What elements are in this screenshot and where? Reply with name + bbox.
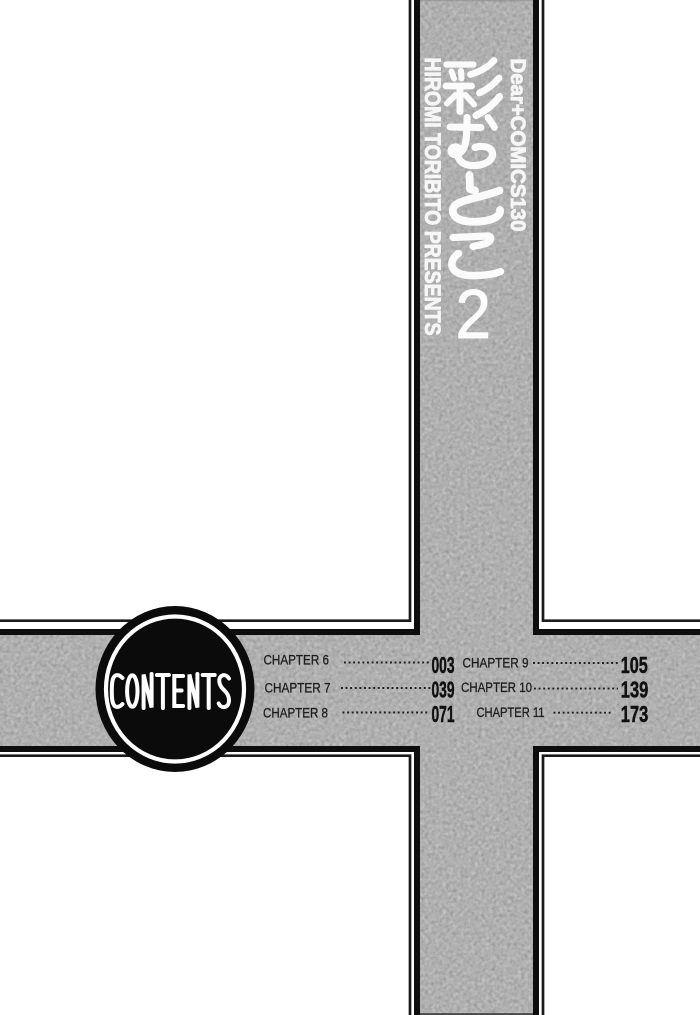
svg-text:105: 105 — [621, 652, 648, 678]
svg-text:CHAPTER 6: CHAPTER 6 — [264, 653, 330, 668]
svg-text:CHAPTER 10: CHAPTER 10 — [461, 680, 532, 695]
svg-text:071: 071 — [432, 701, 455, 727]
svg-text:CHAPTER 7: CHAPTER 7 — [265, 681, 331, 696]
svg-text:CHAPTER 8: CHAPTER 8 — [263, 706, 328, 721]
svg-text:003: 003 — [432, 652, 455, 678]
svg-text:CHAPTER 11: CHAPTER 11 — [477, 705, 545, 720]
svg-text:039: 039 — [432, 676, 455, 702]
svg-text:HIROMI TORIBITO PRESENTS: HIROMI TORIBITO PRESENTS — [420, 58, 445, 336]
svg-text:Dear+COMICS130: Dear+COMICS130 — [506, 59, 530, 232]
svg-text:2: 2 — [456, 275, 492, 353]
svg-text:139: 139 — [621, 676, 649, 702]
svg-text:CHAPTER 9: CHAPTER 9 — [463, 656, 529, 671]
svg-text:173: 173 — [621, 701, 649, 727]
